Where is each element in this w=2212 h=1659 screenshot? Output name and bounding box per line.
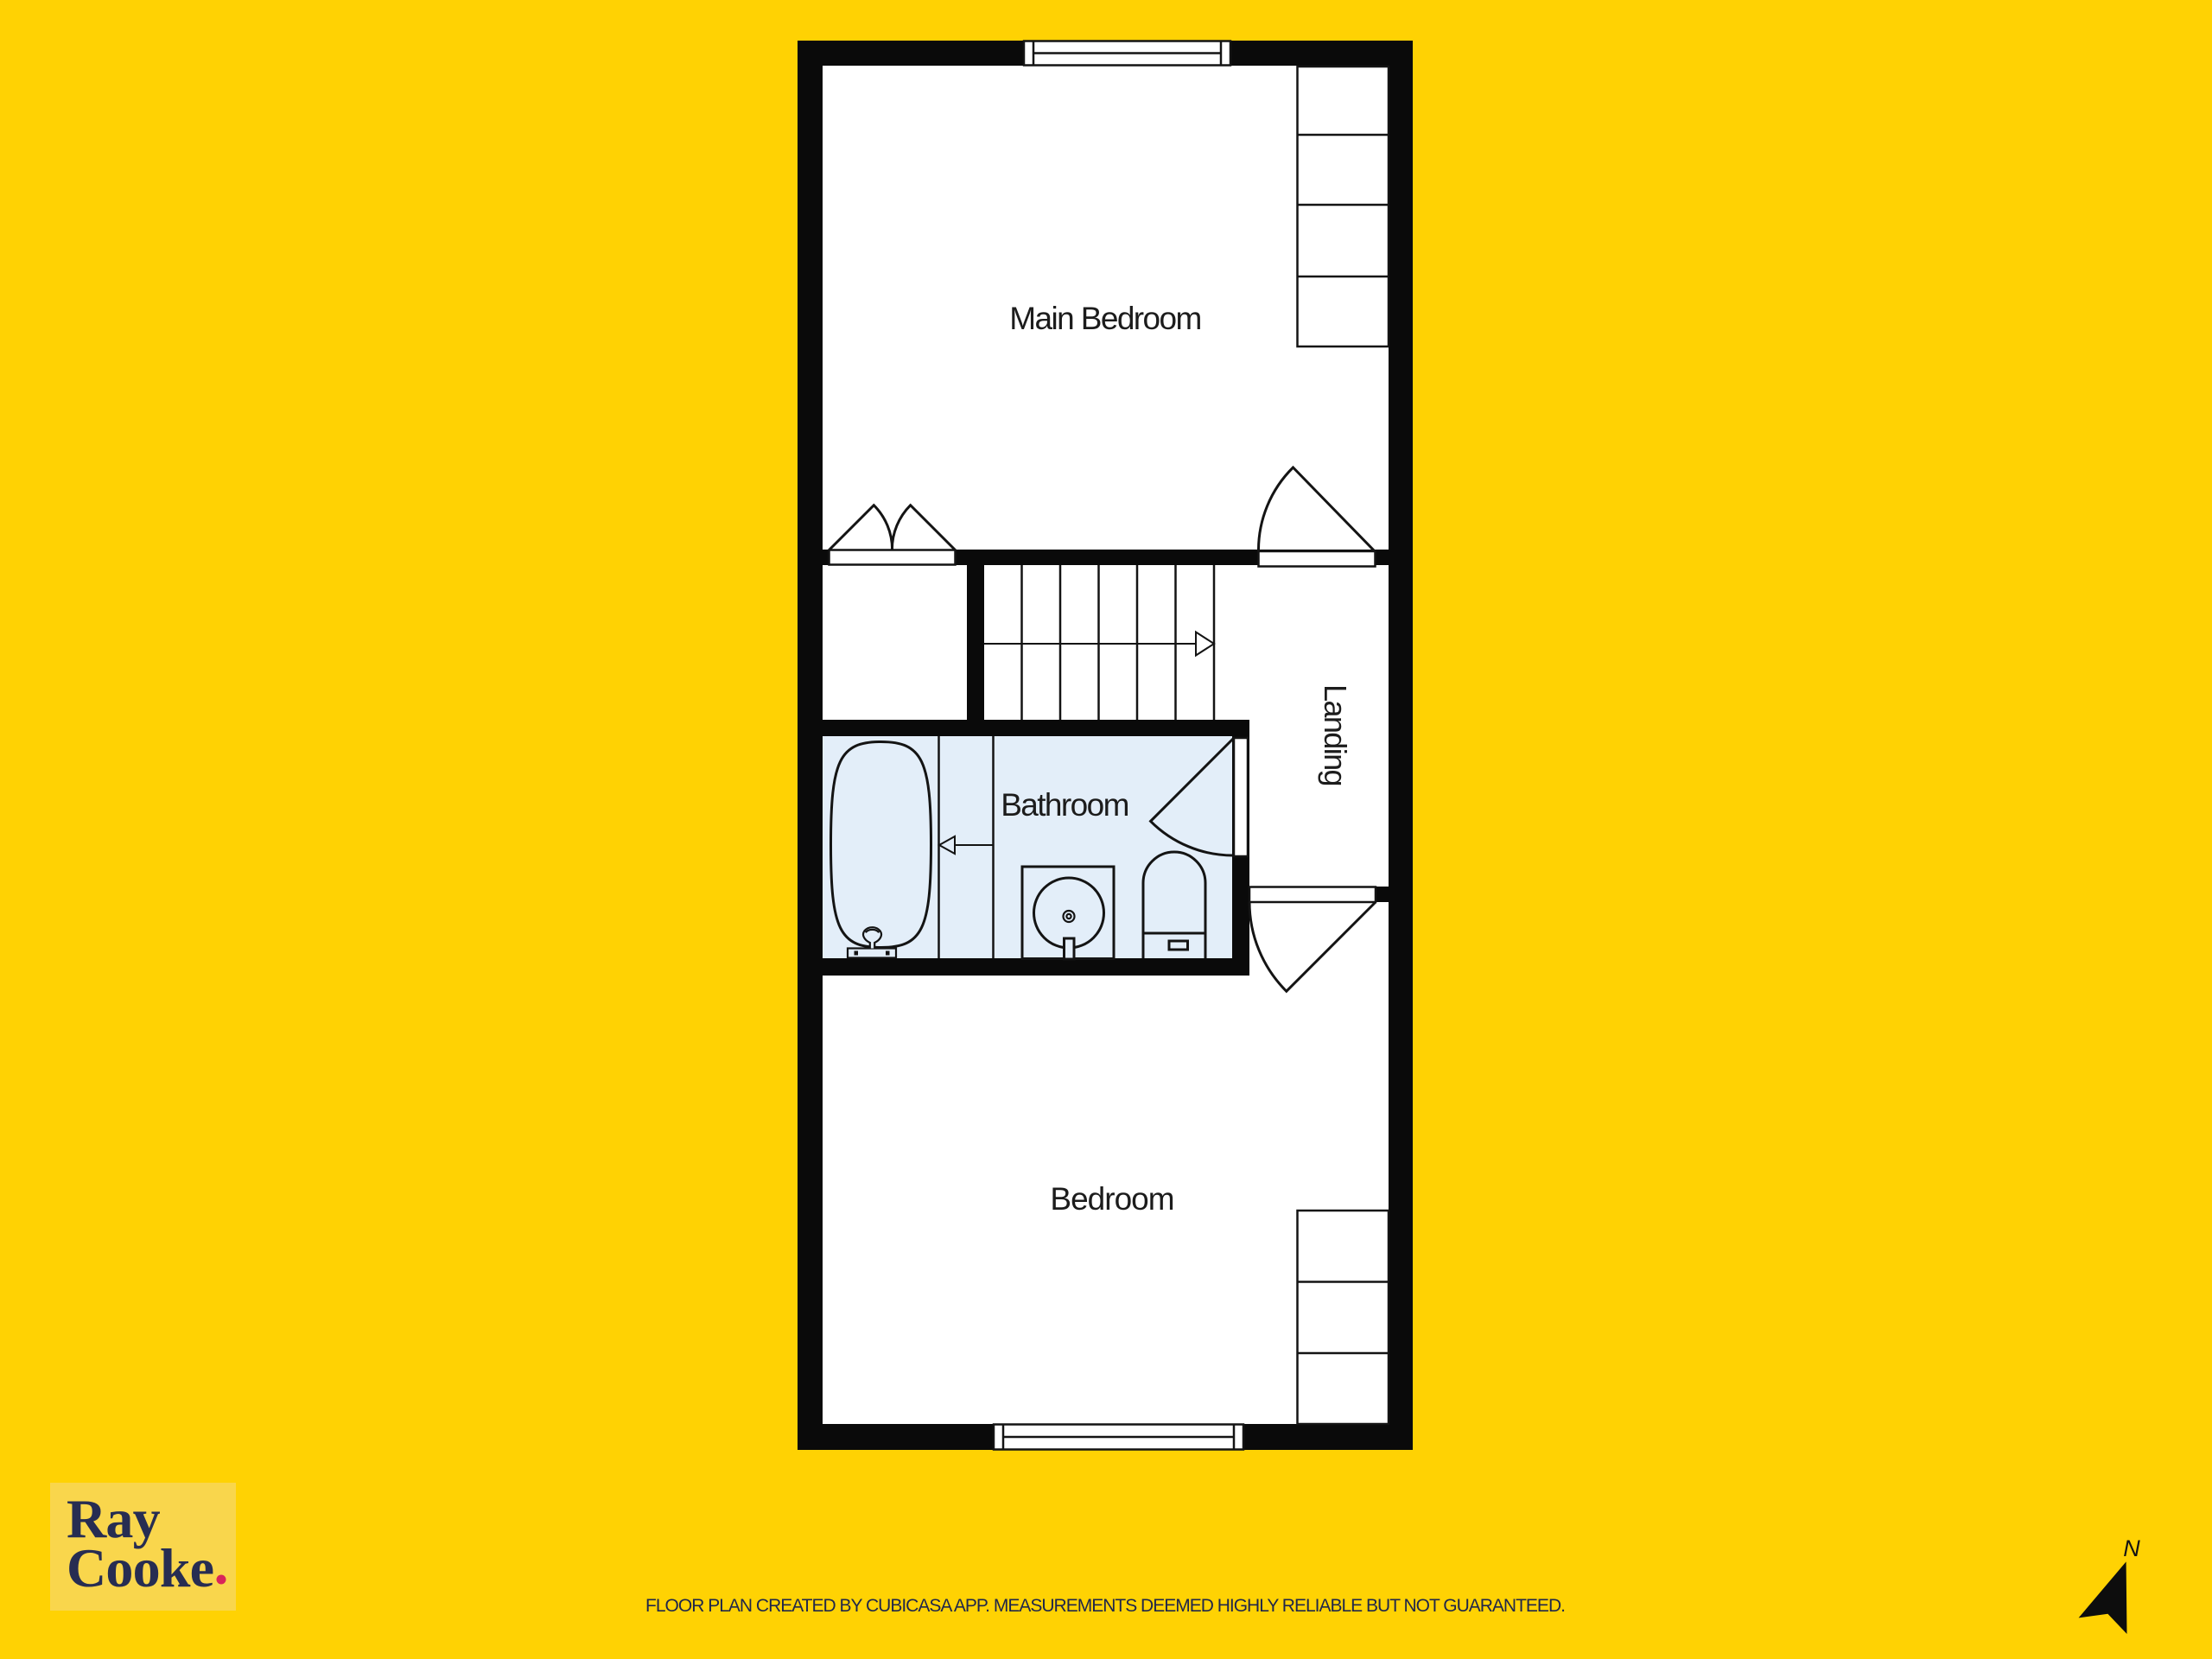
svg-text:Bathroom: Bathroom (1001, 787, 1128, 823)
svg-text:Landing: Landing (1318, 684, 1353, 785)
svg-text:Bedroom: Bedroom (1050, 1181, 1173, 1217)
svg-text:Main Bedroom: Main Bedroom (1009, 301, 1200, 336)
svg-text:Cooke: Cooke (67, 1537, 213, 1599)
svg-text:FLOOR PLAN CREATED BY CUBICASA: FLOOR PLAN CREATED BY CUBICASA APP. MEAS… (645, 1596, 1565, 1616)
svg-text:N: N (2123, 1535, 2140, 1561)
